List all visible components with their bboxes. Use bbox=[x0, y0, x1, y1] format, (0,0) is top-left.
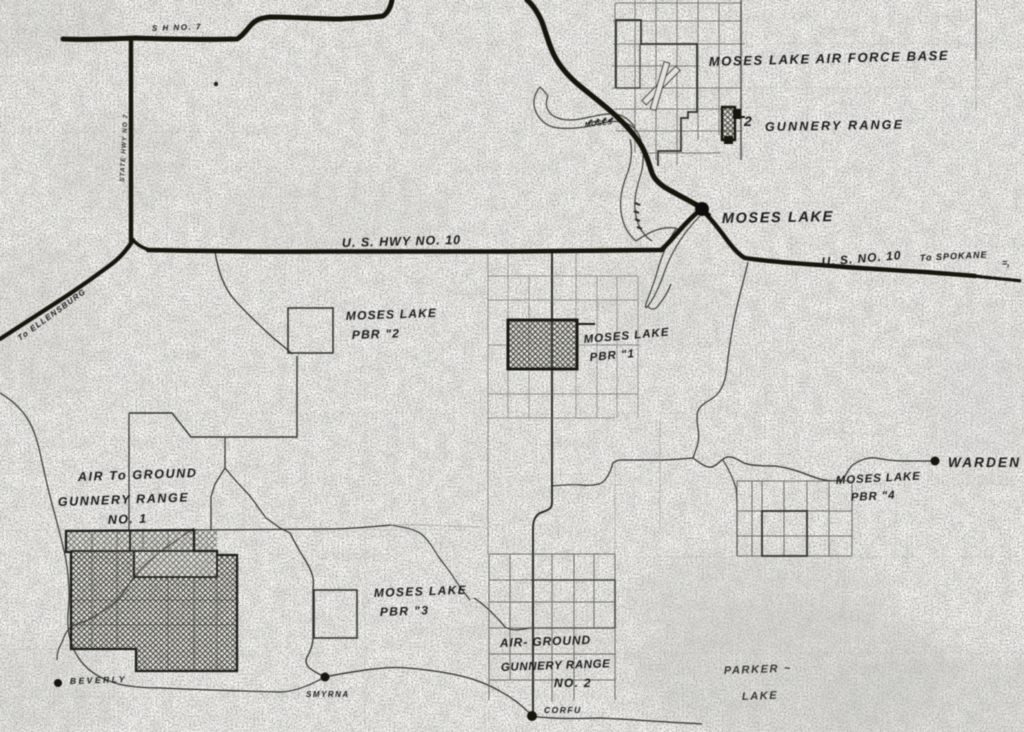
svg-text:PARKER ~: PARKER ~ bbox=[724, 663, 792, 677]
svg-text:SMYRNA: SMYRNA bbox=[306, 690, 350, 699]
svg-text:PBR "3: PBR "3 bbox=[380, 603, 430, 619]
svg-text:WARDEN: WARDEN bbox=[948, 455, 1021, 470]
svg-text:PBR "2: PBR "2 bbox=[352, 326, 401, 342]
svg-text:LAKE: LAKE bbox=[742, 690, 779, 703]
svg-text:S H NO. 7: S H NO. 7 bbox=[152, 22, 202, 33]
svg-text:=,: =, bbox=[1002, 258, 1010, 268]
svg-text:MOSES LAKE: MOSES LAKE bbox=[722, 209, 834, 227]
svg-text:NO. 1: NO. 1 bbox=[108, 512, 148, 527]
svg-text:NO. 2: NO. 2 bbox=[554, 676, 592, 690]
svg-text:2: 2 bbox=[743, 113, 752, 129]
svg-text:CORFU: CORFU bbox=[544, 705, 582, 715]
svg-text:GUNNERY RANGE: GUNNERY RANGE bbox=[765, 118, 905, 134]
svg-text:BEVERLY: BEVERLY bbox=[70, 674, 127, 686]
svg-text:PBR "4: PBR "4 bbox=[851, 490, 896, 504]
